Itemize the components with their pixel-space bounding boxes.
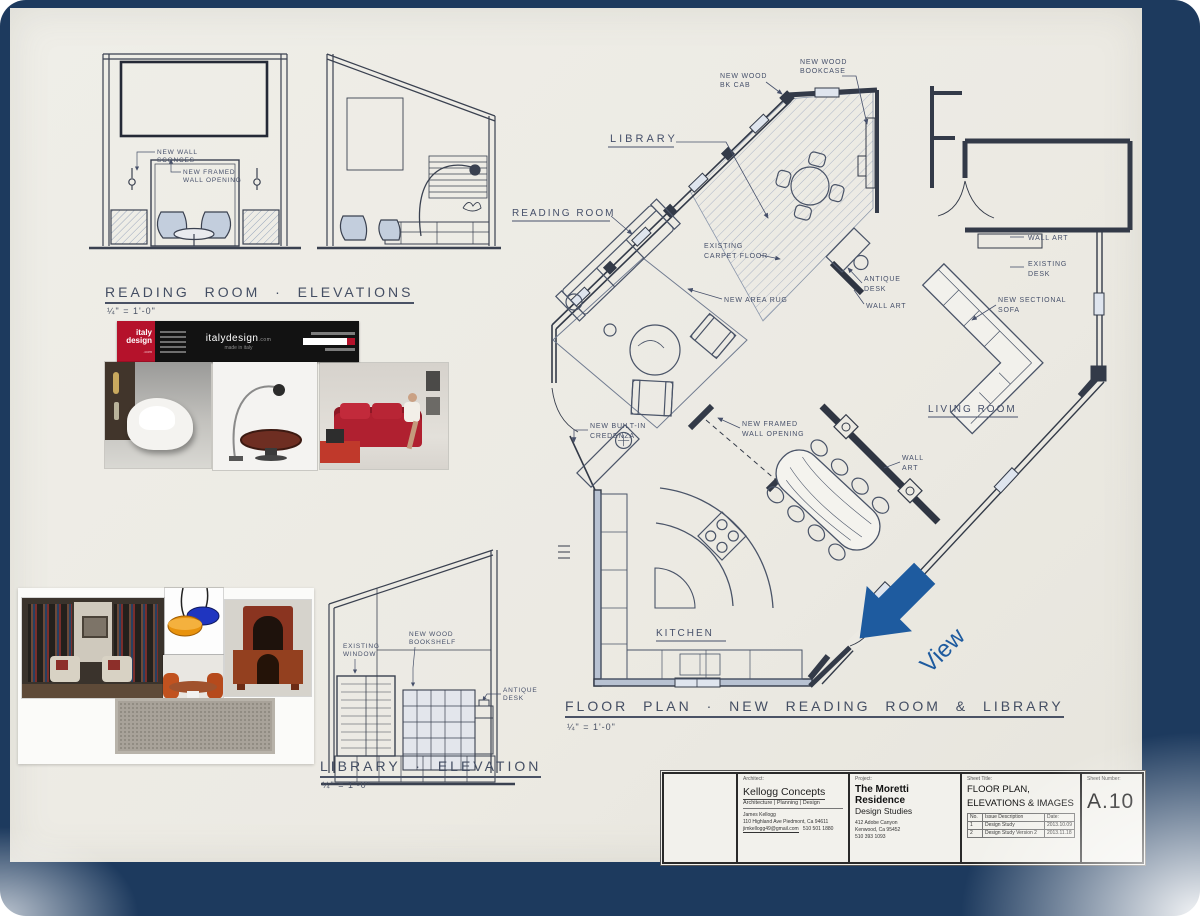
phone-bar [311, 332, 355, 335]
svg-text:BOOKCASE: BOOKCASE [800, 68, 846, 75]
label-new-builtin: NEW BUILT-IN [590, 423, 646, 430]
label-wall-art-library: WALL ART [866, 303, 906, 310]
label-reading-room: READING ROOM [512, 208, 615, 219]
architect-address: 110 Highland Ave Piedmont, Ca 94611 [743, 819, 843, 826]
existing-window-drawing [337, 676, 395, 756]
coffee-table [630, 325, 680, 375]
floor-plan-drawing: LIBRARY READING ROOM NEW WOOD BK CAB NEW… [510, 38, 1155, 718]
banner-menu-bars [160, 331, 186, 353]
svg-text:SCONCES: SCONCES [157, 157, 195, 164]
italydesign-logo: italy design .com [117, 321, 155, 362]
wall-sconce-left [129, 168, 135, 190]
rug-swatch [115, 698, 275, 754]
label-wall-art-dining: WALL [902, 455, 924, 462]
elevation-annotations: NEW WALL SCONCES NEW FRAMED WALL OPENING [137, 149, 242, 184]
photo-white-armchair [105, 362, 211, 468]
stove [698, 512, 746, 560]
arc-lamp-art [213, 362, 317, 470]
kitchen-counters [601, 488, 802, 679]
architect-phone: 510 501 1880 [803, 826, 834, 832]
armchair-1 [690, 314, 735, 359]
label-new-wood-bookshelf: NEW WOOD [409, 631, 453, 638]
search-button [347, 338, 355, 345]
label-new-wood-bkcab: NEW WOOD [720, 73, 767, 80]
photo-library-room [22, 598, 164, 698]
label-new-framed-opening: NEW FRAMED [183, 169, 235, 176]
side-table-2 [604, 324, 616, 336]
svg-text:WINDOW: WINDOW [343, 651, 376, 658]
photo-arc-lamp-table [213, 362, 317, 470]
architect-email: jimkellogg49@gmail.com [743, 826, 799, 833]
dining-table [756, 429, 900, 571]
svg-text:DESK: DESK [864, 286, 886, 293]
banner-right [291, 332, 359, 351]
new-area-rug-outline [553, 258, 747, 428]
search-box [303, 338, 355, 345]
reading-room-elevations-drawing: NEW WALL SCONCES NEW FRAMED WALL OPENING [85, 40, 505, 295]
label-new-sectional: NEW SECTIONAL [998, 297, 1066, 304]
pendant-lamps-art [165, 588, 223, 654]
woman-figure [408, 393, 417, 402]
site-name: italydesign [206, 333, 259, 344]
label-new-area-rug: NEW AREA RUG [724, 297, 788, 304]
elevation-side [317, 54, 501, 248]
label-existing-desk: EXISTING [1028, 261, 1067, 268]
corner-fade-left [0, 826, 140, 916]
wall-sconce-right [254, 168, 260, 190]
logo-word-design: design [126, 337, 152, 345]
architect-person: James Kellogg [743, 812, 843, 819]
floor-plan-title: FLOOR PLAN · NEW READING ROOM & LIBRARY [565, 698, 1064, 718]
view-arrow-label: View [915, 622, 971, 678]
photo-pendant-lamps [165, 588, 223, 654]
window-blinds [429, 156, 487, 198]
view-arrow: View [837, 551, 971, 679]
architect-tagline: Architecture | Planning | Design [743, 800, 843, 809]
armchair-2 [631, 380, 673, 416]
site-tagline: made in italy [186, 345, 291, 351]
label-kitchen: KITCHEN [656, 628, 714, 639]
library-elevation-scale: ¼" = 1'-0" [322, 780, 371, 790]
svg-text:BK CAB: BK CAB [720, 82, 750, 89]
reading-elevations-scale: ¼" = 1'-0" [107, 306, 156, 316]
library-carpet-hatch [690, 92, 873, 321]
corner-fade [940, 716, 1200, 916]
site-com: .com [258, 337, 271, 343]
banner-site: italydesign.com made in italy [186, 333, 291, 351]
label-new-wood-bookcase: NEW WOOD [800, 59, 847, 66]
label-new-wall-sconces: NEW WALL [157, 149, 198, 156]
label-new-framed: NEW FRAMED [742, 421, 798, 428]
svg-text:DESK: DESK [1028, 271, 1050, 278]
account-bar [325, 348, 355, 351]
logo-com: .com [143, 349, 152, 354]
label-antique-desk: ANTIQUE [864, 276, 901, 283]
svg-text:ART: ART [902, 465, 918, 472]
side-chairs [340, 216, 400, 240]
architect-label: Architect: [743, 776, 843, 782]
search-input [303, 338, 347, 345]
svg-text:SOFA: SOFA [998, 307, 1020, 314]
label-library: LIBRARY [610, 133, 678, 145]
library-elevation-title: LIBRARY · ELEVATION [320, 758, 541, 778]
photo-red-sofa [320, 363, 448, 469]
italydesign-banner: italy design .com italydesign.com made i… [117, 321, 359, 362]
architect-cell: Architect: Kellogg Concepts Architecture… [736, 774, 848, 862]
framed-art [82, 616, 108, 638]
architect-contact: jimkellogg49@gmail.com 510 501 1880 [743, 826, 843, 833]
plant [463, 202, 481, 211]
photo-antique-cabinet [225, 600, 311, 696]
architect-firm: Kellogg Concepts [743, 786, 825, 800]
label-living-room: LIVING ROOM [928, 404, 1017, 415]
label-wall-art-right: WALL ART [1028, 235, 1068, 242]
arc-lamp [419, 165, 475, 236]
reading-elevations-title: READING ROOM · ELEVATIONS [105, 284, 414, 304]
svg-text:CREDENZA: CREDENZA [590, 433, 635, 440]
title-block-empty-cell [664, 774, 736, 862]
label-existing-window: EXISTING [343, 643, 380, 650]
antique-desk-drawing [475, 700, 493, 754]
svg-text:WALL OPENING: WALL OPENING [742, 431, 804, 438]
label-existing-carpet: EXISTING [704, 243, 743, 250]
svg-text:CARPET FLOOR: CARPET FLOOR [704, 253, 768, 260]
svg-text:WALL OPENING: WALL OPENING [183, 177, 242, 184]
svg-text:BOOKSHELF: BOOKSHELF [409, 639, 456, 646]
floor-plan-scale: ¼" = 1'-0" [567, 722, 616, 732]
